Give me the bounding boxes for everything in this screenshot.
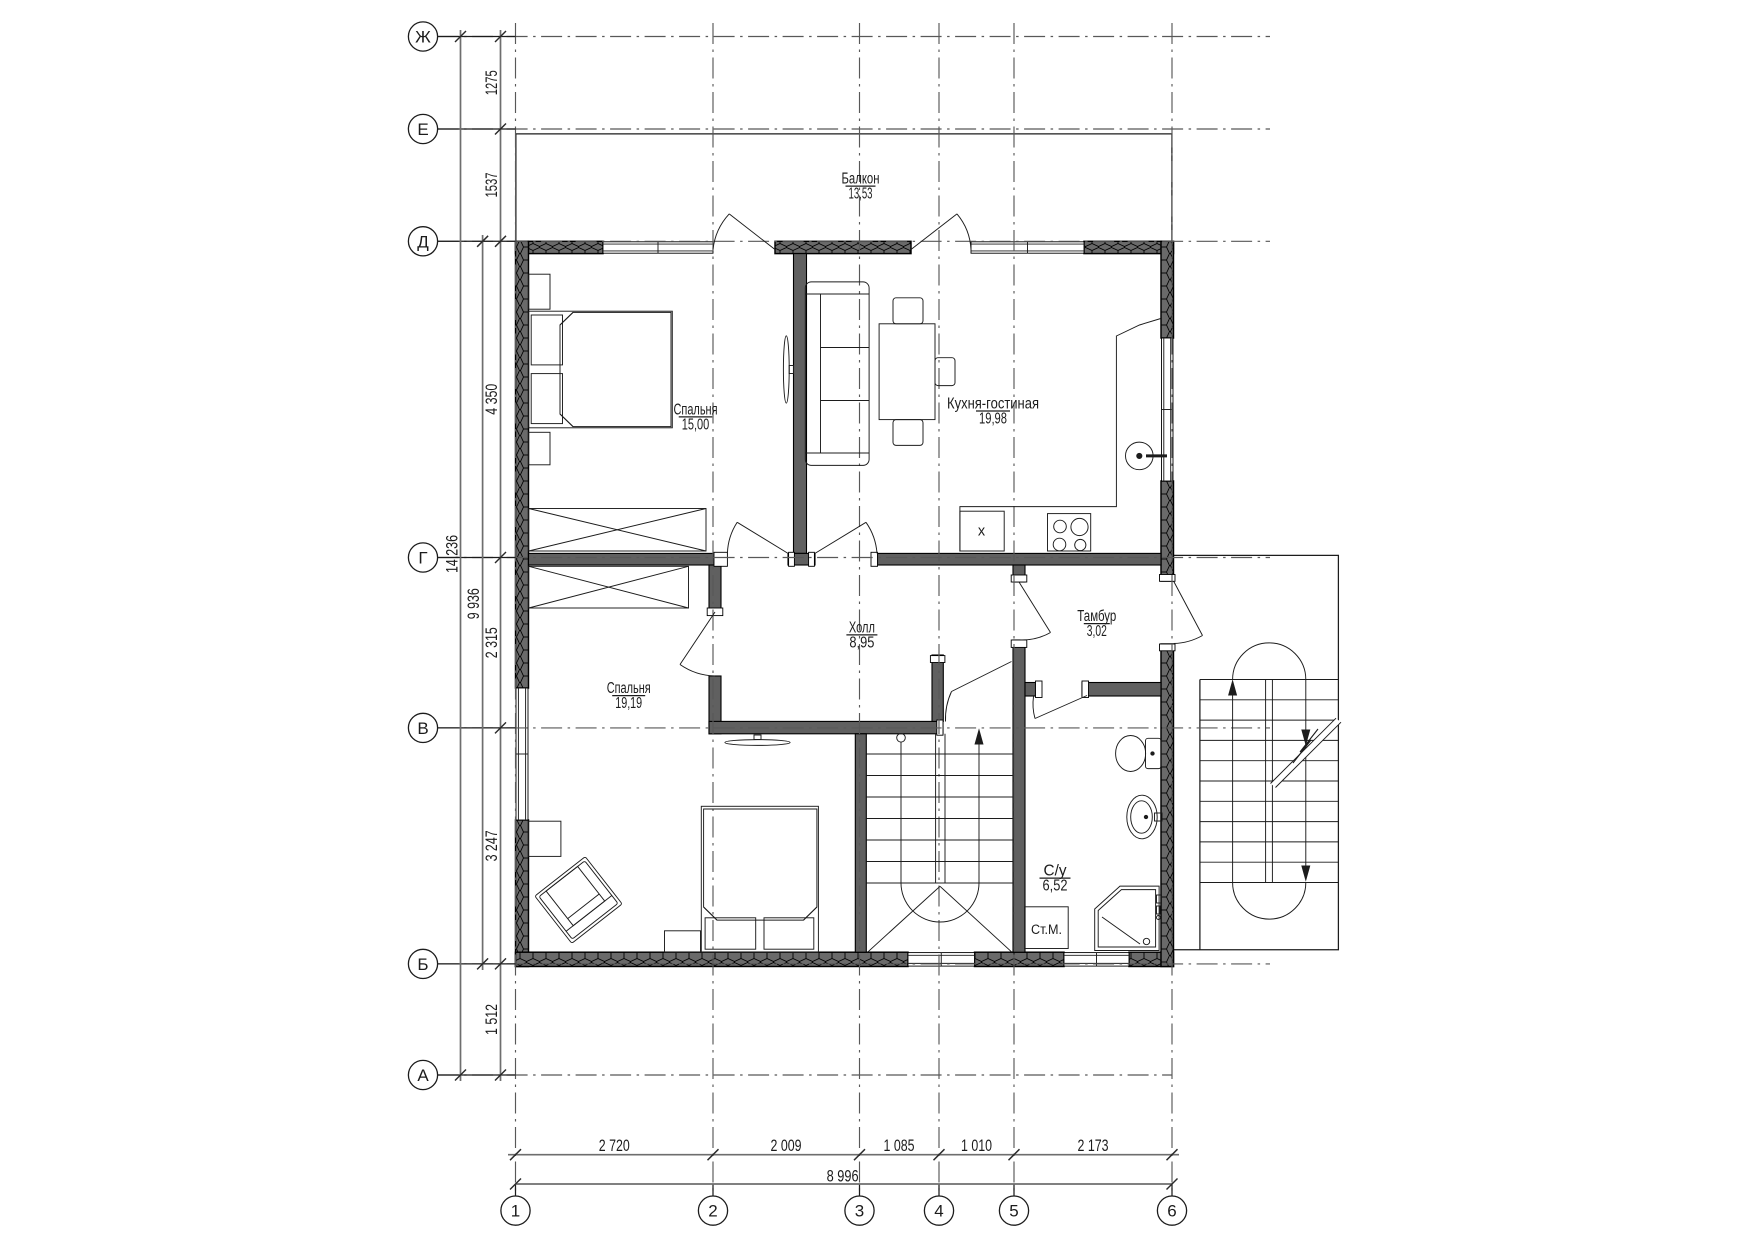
svg-text:Е: Е (417, 120, 428, 139)
svg-text:Ст.М.: Ст.М. (1031, 922, 1062, 937)
svg-text:9 936: 9 936 (464, 588, 483, 619)
svg-text:В: В (417, 719, 428, 738)
svg-text:1537: 1537 (482, 173, 501, 198)
svg-text:3 247: 3 247 (482, 830, 501, 861)
svg-text:6,52: 6,52 (1043, 878, 1068, 895)
svg-text:14,236: 14,236 (443, 535, 462, 573)
svg-text:А: А (417, 1066, 429, 1085)
svg-text:19,19: 19,19 (615, 695, 642, 712)
svg-text:8 996: 8 996 (827, 1167, 859, 1186)
svg-text:1 512: 1 512 (482, 1004, 501, 1035)
svg-text:8,95: 8,95 (849, 634, 874, 651)
svg-text:Д: Д (417, 232, 429, 251)
svg-text:Г: Г (418, 549, 427, 568)
svg-text:15,00: 15,00 (682, 416, 710, 433)
svg-text:2 173: 2 173 (1078, 1136, 1109, 1155)
svg-text:Ж: Ж (415, 28, 431, 47)
svg-text:5: 5 (1009, 1202, 1018, 1221)
svg-text:3,02: 3,02 (1087, 623, 1107, 640)
svg-text:2 315: 2 315 (482, 627, 501, 658)
svg-text:4: 4 (934, 1202, 943, 1221)
svg-text:1 085: 1 085 (884, 1136, 915, 1155)
svg-text:2 720: 2 720 (599, 1136, 630, 1155)
svg-text:3: 3 (855, 1202, 864, 1221)
svg-text:1275: 1275 (482, 70, 501, 95)
svg-text:13,53: 13,53 (849, 186, 873, 203)
svg-text:6: 6 (1167, 1202, 1176, 1221)
svg-text:2 009: 2 009 (771, 1136, 802, 1155)
svg-text:2: 2 (708, 1202, 717, 1221)
svg-text:4 350: 4 350 (482, 384, 501, 415)
svg-text:1 010: 1 010 (961, 1136, 992, 1155)
svg-text:19,98: 19,98 (979, 411, 1007, 428)
svg-text:х: х (978, 524, 986, 540)
svg-text:Б: Б (417, 955, 428, 974)
svg-text:1: 1 (511, 1202, 520, 1221)
